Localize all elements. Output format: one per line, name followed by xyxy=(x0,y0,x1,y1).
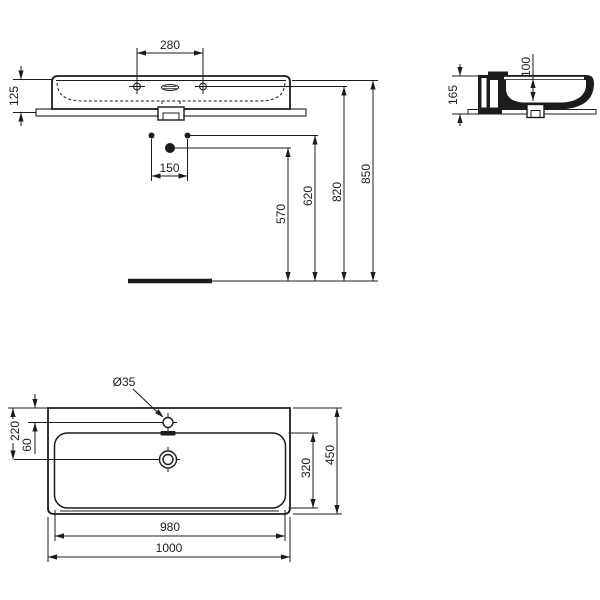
washbasin-dimension-drawing: 280 125 150 xyxy=(0,0,600,600)
rim-slit xyxy=(504,77,584,79)
dim-label-570: 570 xyxy=(274,204,288,224)
bracket-slot-1 xyxy=(482,78,487,108)
overflow-slot-plan xyxy=(161,431,176,436)
dim-label-450: 450 xyxy=(323,445,337,465)
dim-label-620: 620 xyxy=(301,186,315,206)
dim-label-320: 320 xyxy=(299,458,313,478)
dim-label-150: 150 xyxy=(159,161,179,175)
dim-label-1000: 1000 xyxy=(156,541,183,555)
dim-label-d35: Ø35 xyxy=(113,375,136,389)
technical-drawing-page: 280 125 150 xyxy=(0,0,600,600)
dim-label-220: 220 xyxy=(8,421,22,441)
drain-connection-point xyxy=(165,143,175,153)
bracket-foot xyxy=(478,110,502,114)
dim-label-100: 100 xyxy=(519,57,533,77)
dim-label-165: 165 xyxy=(446,85,460,105)
dim-label-280: 280 xyxy=(160,38,180,52)
dim-label-60: 60 xyxy=(20,438,34,452)
bracket-slot-2 xyxy=(490,80,498,108)
bowl-cavity-side xyxy=(506,80,586,103)
dim-label-980: 980 xyxy=(160,520,180,534)
dim-label-125: 125 xyxy=(7,86,21,106)
fixing-point-left xyxy=(149,133,155,139)
dim-label-850: 850 xyxy=(359,164,373,184)
rear-rim-bump xyxy=(488,72,508,77)
fixing-point-right xyxy=(185,133,191,139)
dim-label-820: 820 xyxy=(330,182,344,202)
